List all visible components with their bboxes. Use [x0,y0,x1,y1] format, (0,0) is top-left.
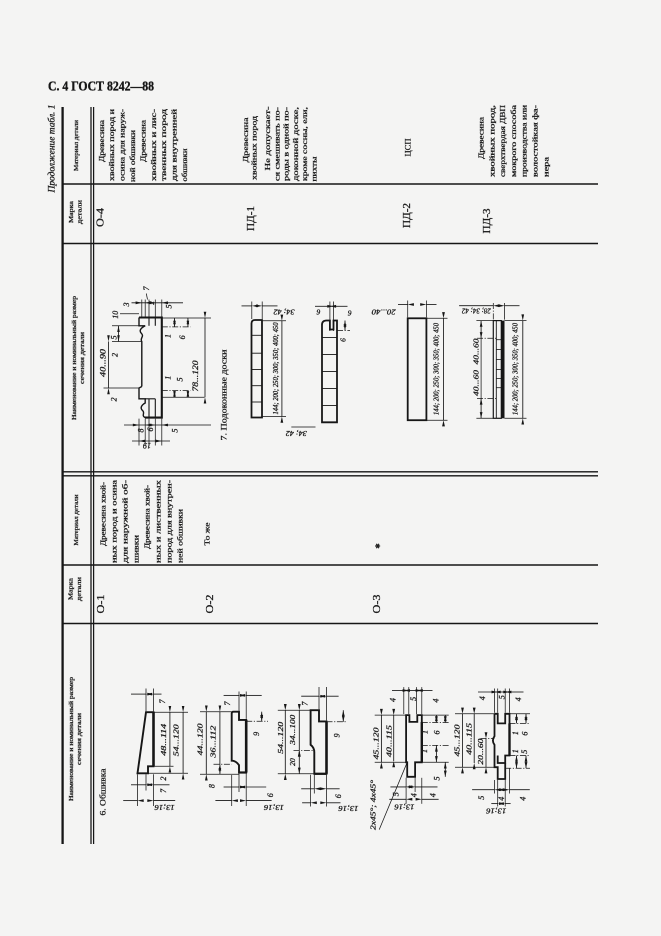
svg-text:1: 1 [421,730,430,734]
svg-text:хвойных и лис-: хвойных и лис- [150,108,158,181]
svg-text:1: 1 [420,749,429,753]
svg-text:6: 6 [432,731,441,735]
svg-text:6: 6 [316,308,320,317]
svg-text:5: 5 [409,697,418,701]
svg-text:4: 4 [478,696,487,700]
svg-text:производства или: производства или [521,105,529,177]
svg-text:4: 4 [410,793,419,797]
svg-text:144; 200; 250; 300; 350; 400;: 144; 200; 250; 300; 350; 400; 450 [273,322,280,415]
svg-text:мокрого способа: мокрого способа [510,104,518,177]
svg-text:34; 42: 34; 42 [273,307,295,316]
svg-text:1: 1 [163,376,172,380]
svg-text:С. 4 ГОСТ 8242—88: С. 4 ГОСТ 8242—88 [48,79,154,94]
svg-text:3: 3 [122,303,131,308]
svg-text:44...120: 44...120 [196,723,205,755]
svg-text:шивки: шивки [132,535,141,563]
svg-text:13;16: 13;16 [394,803,414,812]
svg-text:36...112: 36...112 [209,725,218,758]
svg-text:2х45°; 4х45°: 2х45°; 4х45° [369,780,378,830]
svg-text:хвойных пород,: хвойных пород, [488,105,496,177]
svg-text:144; 200; 250; 300; 350; 400;: 144; 200; 250; 300; 350; 400; 450 [512,322,519,415]
svg-text:5: 5 [176,378,185,382]
svg-text:6: 6 [146,428,155,432]
svg-text:1: 1 [511,731,520,735]
svg-text:19: 19 [143,441,151,450]
svg-text:28; 34; 42: 28; 34; 42 [462,307,491,316]
svg-text:Древесина: Древесина [98,119,106,162]
svg-text:ных пород и осина: ных пород и осина [110,479,119,563]
svg-text:детали: детали [77,199,84,224]
svg-text:1: 1 [511,749,520,753]
svg-text:твенных пород: твенных пород [160,108,168,181]
svg-text:кроме сосны, ели,: кроме сосны, ели, [300,107,309,181]
svg-text:детали: детали [76,576,83,601]
svg-text:Материал детали: Материал детали [73,494,80,546]
svg-text:6: 6 [339,338,348,342]
svg-text:6: 6 [334,794,343,798]
svg-text:Продолжение табл. 1: Продолжение табл. 1 [47,105,57,194]
svg-text:Древесина хвой-: Древесина хвой- [99,481,108,546]
svg-text:хвойных пород и: хвойных пород и [108,109,116,181]
svg-text:ПД-1: ПД-1 [246,206,257,231]
svg-text:Наименование и номинальный раз: Наименование и номинальный размер [71,296,78,420]
svg-text:40...60: 40...60 [472,370,481,396]
svg-text:осина для наруж-: осина для наруж- [119,108,127,181]
svg-text:Марка: Марка [68,201,75,223]
svg-text:9: 9 [333,734,342,738]
svg-text:2: 2 [110,398,119,402]
svg-text:4: 4 [389,698,398,702]
svg-text:48...114: 48...114 [159,724,168,756]
svg-text:5: 5 [477,796,486,800]
svg-text:Древесина: Древесина [139,119,147,162]
svg-text:✱: ✱ [374,543,382,549]
svg-text:Материал детали: Материал детали [73,119,80,171]
svg-text:5: 5 [498,695,507,699]
svg-text:О-3: О-3 [372,595,383,614]
svg-text:45...120: 45...120 [453,724,462,756]
svg-text:13;16: 13;16 [338,804,358,813]
svg-text:Древесина: Древесина [478,116,486,159]
svg-text:1: 1 [163,334,172,338]
svg-text:13;16: 13;16 [264,803,284,812]
svg-text:144; 200; 250; 300; 350; 400;: 144; 200; 250; 300; 350; 400; 450 [434,322,441,415]
svg-text:6: 6 [521,732,530,736]
svg-text:нера: нера [542,156,550,177]
svg-text:13;16: 13;16 [486,807,506,816]
svg-text:6: 6 [266,793,275,797]
svg-text:пихты: пихты [310,156,319,181]
svg-text:ПД-2: ПД-2 [402,203,413,228]
svg-text:ПД-3: ПД-3 [482,209,493,234]
svg-text:О-1: О-1 [96,595,107,614]
svg-text:34; 42: 34; 42 [286,429,308,438]
svg-text:ся смешивать по-: ся смешивать по- [272,106,281,181]
svg-text:ных и лиственных: ных и лиственных [154,480,163,563]
svg-text:34...100: 34...100 [288,715,297,746]
svg-text:хвойных пород: хвойных пород [250,116,259,180]
svg-text:40...115: 40...115 [385,725,394,757]
svg-text:ней обшивки: ней обшивки [176,509,185,563]
svg-text:Наименование и номинальный раз: Наименование и номинальный размер [68,677,75,801]
svg-text:40...115: 40...115 [464,723,473,755]
svg-text:ной обшивки: ной обшивки [129,130,137,182]
svg-text:5: 5 [110,336,119,340]
svg-text:54...120: 54...120 [172,724,181,756]
svg-text:8: 8 [137,429,146,433]
svg-text:для внутренней: для внутренней [171,109,179,181]
svg-text:О-2: О-2 [205,595,216,614]
svg-text:20...40: 20...40 [372,308,396,317]
svg-text:5: 5 [392,792,401,796]
svg-text:45...120: 45...120 [371,727,380,759]
svg-text:9: 9 [252,732,261,736]
svg-text:То же: То же [203,522,212,546]
svg-text:волостойкая фа-: волостойкая фа- [532,104,540,177]
svg-text:Марка: Марка [68,578,75,600]
svg-text:10: 10 [111,311,120,319]
svg-text:4: 4 [519,797,528,801]
svg-text:40...60: 40...60 [472,338,481,364]
svg-text:40...90: 40...90 [98,349,107,377]
svg-text:54...120: 54...120 [276,722,285,754]
svg-text:20...60: 20...60 [476,738,485,764]
svg-text:5: 5 [520,750,529,754]
svg-text:8: 8 [207,784,216,788]
svg-text:6: 6 [178,335,187,339]
svg-text:2: 2 [159,777,168,781]
svg-text:2: 2 [148,301,156,305]
svg-text:20: 20 [288,758,297,766]
svg-text:пород для внутрен-: пород для внутрен- [165,479,174,563]
svg-text:6: 6 [348,309,352,318]
svg-text:78...120: 78...120 [191,361,200,392]
svg-text:для наружной об-: для наружной об- [121,479,130,563]
svg-text:5: 5 [170,429,179,433]
svg-text:доконной доске,: доконной доске, [291,107,300,181]
svg-text:5: 5 [433,777,442,781]
svg-text:5: 5 [165,305,174,309]
svg-text:Древесина хвой-: Древесина хвой- [143,484,152,549]
svg-text:обшивки: обшивки [181,148,189,181]
svg-text:2: 2 [111,353,120,357]
svg-text:4: 4 [514,697,523,701]
svg-text:О-4: О-4 [96,208,107,227]
svg-text:4: 4 [497,797,506,801]
svg-text:роды в одной по-: роды в одной по- [282,106,291,181]
svg-text:13;16: 13;16 [154,803,174,812]
svg-text:сечения детали: сечения детали [79,331,86,384]
svg-text:сечения детали: сечения детали [76,712,83,765]
svg-text:сверхтвердая ДВП: сверхтвердая ДВП [499,105,507,177]
svg-text:ЦСП: ЦСП [403,139,413,157]
svg-text:Не допускает-: Не допускает- [263,106,272,171]
svg-text:6. Обшивка: 6. Обшивка [98,768,108,815]
svg-text:7. Подоконные доски: 7. Подоконные доски [219,349,229,440]
svg-text:4: 4 [429,793,438,797]
svg-text:4: 4 [431,699,440,703]
